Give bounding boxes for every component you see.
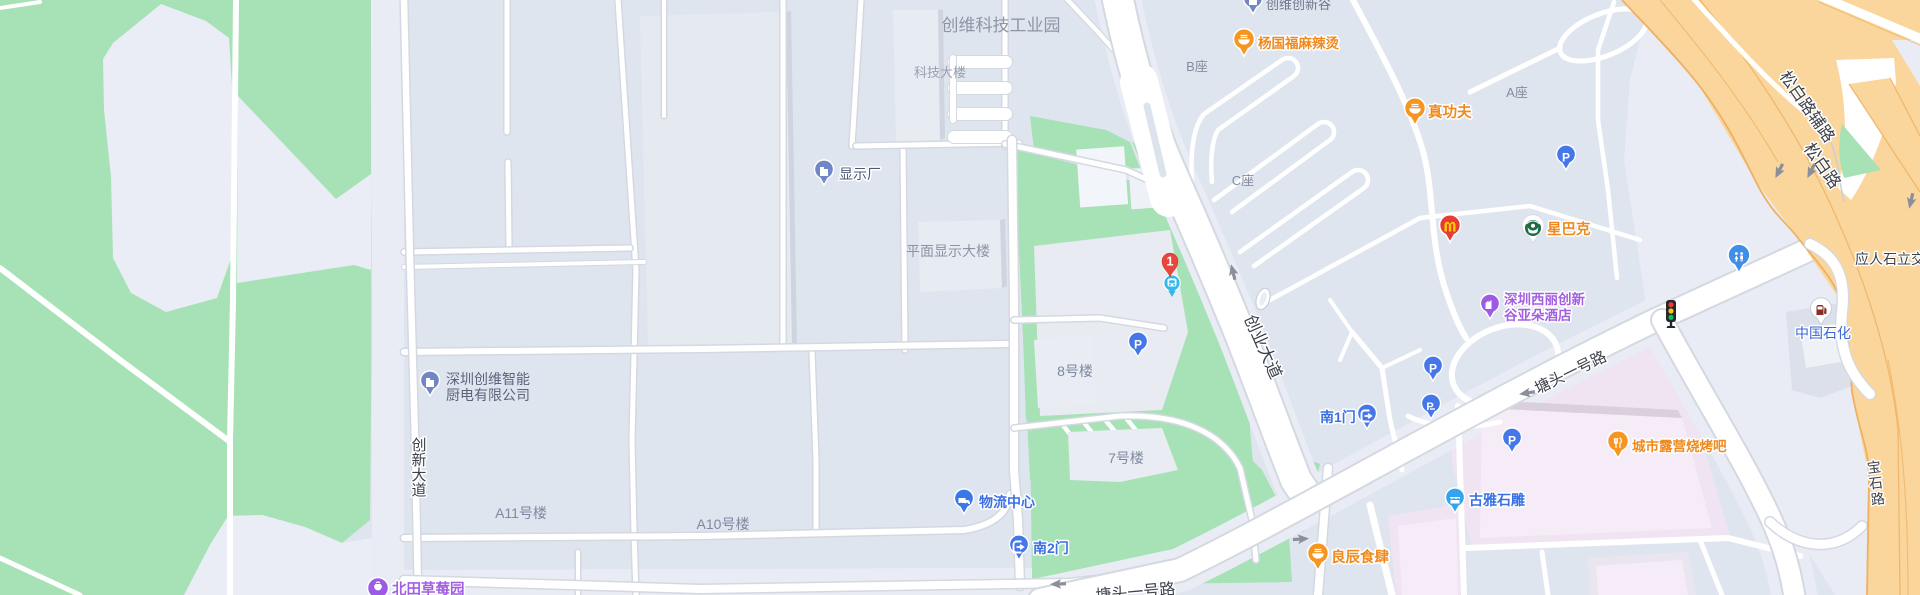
svg-text:杨国福麻辣烫: 杨国福麻辣烫 bbox=[1258, 35, 1339, 51]
svg-text:创维创新谷: 创维创新谷 bbox=[1266, 0, 1331, 12]
svg-text:南2门: 南2门 bbox=[1033, 540, 1069, 556]
svg-text:科技大楼: 科技大楼 bbox=[914, 65, 966, 80]
svg-text:C座: C座 bbox=[1232, 173, 1254, 188]
svg-text:P: P bbox=[1426, 401, 1433, 413]
svg-text:P: P bbox=[1562, 151, 1570, 165]
svg-text:创维科技工业园: 创维科技工业园 bbox=[942, 16, 1061, 35]
svg-text:P: P bbox=[1508, 434, 1516, 448]
svg-text:1: 1 bbox=[1167, 255, 1174, 269]
svg-text:古雅石雕: 古雅石雕 bbox=[1469, 492, 1525, 508]
svg-text:谷亚朵酒店: 谷亚朵酒店 bbox=[1504, 307, 1572, 323]
svg-text:平面显示大楼: 平面显示大楼 bbox=[906, 243, 990, 259]
svg-text:P: P bbox=[1429, 362, 1437, 376]
svg-text:北田草莓园: 北田草莓园 bbox=[392, 580, 465, 595]
svg-text:A10号楼: A10号楼 bbox=[697, 516, 750, 532]
svg-text:A11号楼: A11号楼 bbox=[495, 505, 547, 521]
svg-text:7号楼: 7号楼 bbox=[1108, 450, 1144, 466]
svg-text:城市露营烧烤吧: 城市露营烧烤吧 bbox=[1632, 438, 1727, 454]
svg-text:8号楼: 8号楼 bbox=[1057, 363, 1093, 379]
svg-text:良辰食肆: 良辰食肆 bbox=[1331, 548, 1389, 566]
svg-text:B座: B座 bbox=[1186, 59, 1208, 74]
svg-text:创新大道: 创新大道 bbox=[411, 437, 426, 499]
svg-text:物流中心: 物流中心 bbox=[979, 494, 1035, 510]
svg-text:厨电有限公司: 厨电有限公司 bbox=[446, 387, 530, 403]
svg-text:P: P bbox=[1134, 338, 1142, 352]
svg-text:深圳西丽创新: 深圳西丽创新 bbox=[1504, 291, 1585, 307]
svg-text:显示厂: 显示厂 bbox=[839, 166, 881, 182]
svg-text:真功夫: 真功夫 bbox=[1428, 103, 1472, 121]
svg-text:A座: A座 bbox=[1506, 85, 1528, 100]
svg-text:南1门: 南1门 bbox=[1320, 409, 1356, 425]
svg-text:星巴克: 星巴克 bbox=[1547, 220, 1591, 238]
svg-text:深圳创维智能: 深圳创维智能 bbox=[446, 371, 530, 387]
svg-text:中国石化: 中国石化 bbox=[1795, 325, 1851, 341]
svg-text:应人石立交: 应人石立交 bbox=[1855, 251, 1920, 267]
